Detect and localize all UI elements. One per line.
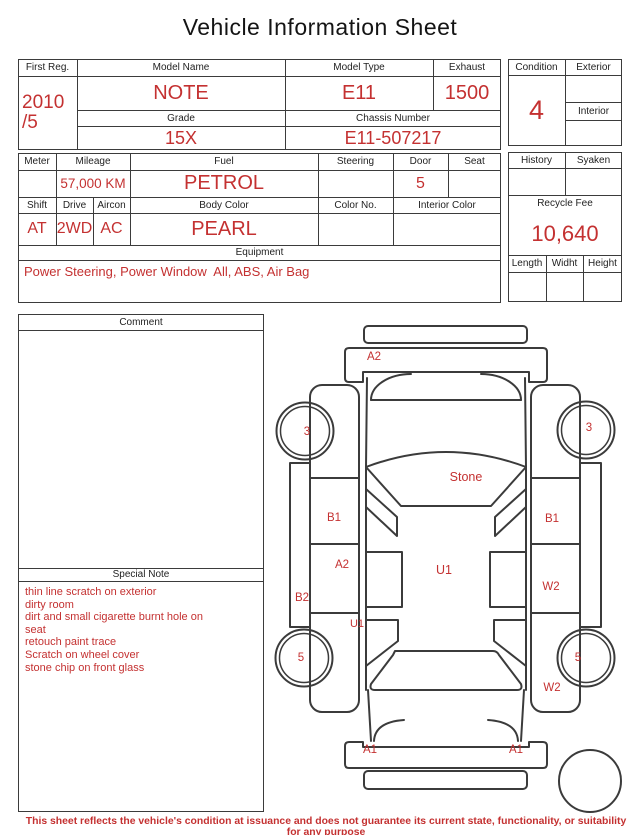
damage-code-windshield: Stone xyxy=(450,470,483,484)
front-door-window-left-shape xyxy=(366,552,402,607)
left-side-panel-shape xyxy=(310,385,359,712)
trunk-arcs xyxy=(374,720,518,741)
damage-code-front-wheel-right: 3 xyxy=(586,422,592,434)
damage-code-rear-door-right: W2 xyxy=(542,581,559,593)
damage-code-rear-quarter-right: W2 xyxy=(543,682,560,694)
headlight-arcs xyxy=(371,374,521,400)
vehicle-information-sheet: Vehicle Information Sheet First Reg. 201… xyxy=(0,0,640,835)
rear-window-shape xyxy=(371,651,522,690)
damage-code-roof-left-edge: U1 xyxy=(350,618,364,630)
a-pillar-shapes xyxy=(366,489,526,536)
roof-side-edges xyxy=(366,467,526,690)
damage-code-roof: U1 xyxy=(436,563,452,577)
damage-code-front-bumper: A2 xyxy=(367,351,381,363)
damage-code-front-door-left: B1 xyxy=(327,512,341,524)
damage-code-rear-bumper-right: A1 xyxy=(509,744,523,756)
damage-code-rear-wheel-left: 5 xyxy=(298,652,304,664)
damage-code-rear-door-left: A2 xyxy=(335,559,349,571)
trunk-side-edges xyxy=(368,690,524,741)
damage-code-rear-bumper-left: A1 xyxy=(363,744,377,756)
damage-code-front-door-right: B1 xyxy=(545,513,559,525)
spare-tire xyxy=(559,750,621,812)
left-panel-dividers xyxy=(310,478,359,613)
right-rocker-panel-shape xyxy=(580,463,601,627)
front-grille-bar-shape xyxy=(364,326,527,343)
damage-code-rocker-left: B2 xyxy=(295,592,309,604)
rear-right-wheel xyxy=(558,630,615,687)
front-door-window-right-shape xyxy=(490,552,526,607)
car-damage-diagram: A2 3 3 Stone B1 B1 A2 U1 B2 W2 U1 5 5 W2… xyxy=(0,0,640,835)
rear-lower-bar-shape xyxy=(364,771,527,789)
hood-shape xyxy=(366,378,526,467)
windshield-shape xyxy=(366,452,526,506)
disclaimer-text: This sheet reflects the vehicle's condit… xyxy=(20,816,632,835)
damage-code-front-wheel-left: 3 xyxy=(304,426,310,438)
damage-code-rear-wheel-right: 5 xyxy=(575,652,581,664)
rear-right-wheel-inner xyxy=(562,634,611,683)
right-side-panel-shape xyxy=(531,385,580,712)
